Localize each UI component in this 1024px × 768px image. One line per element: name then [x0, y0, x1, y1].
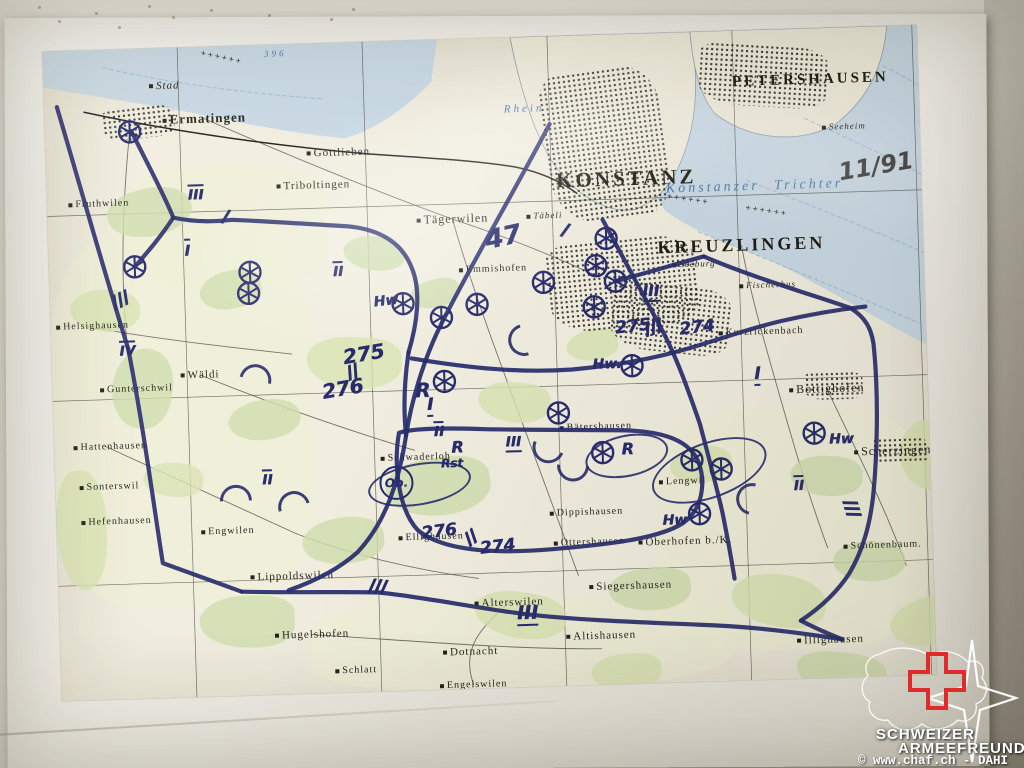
ink-boundary-line	[57, 102, 242, 597]
laminated-map-sheet: ++++++++++++++++++StadErmatingenTribolti…	[4, 14, 989, 768]
ink-overlay-layer	[42, 25, 936, 701]
handwritten-annotation: II	[332, 261, 343, 280]
unit-wheel-symbol	[121, 253, 148, 280]
handwritten-annotation: I	[754, 364, 761, 386]
handwritten-annotation: III	[642, 282, 659, 303]
tick	[652, 319, 655, 336]
unit-wheel-symbol	[545, 400, 572, 427]
tick	[658, 317, 661, 334]
topographic-map: ++++++++++++++++++StadErmatingenTribolti…	[42, 25, 936, 701]
wall-speck	[268, 14, 271, 17]
handwritten-annotation: II	[433, 421, 444, 440]
handwritten-annotation: Hw	[829, 431, 854, 448]
handwritten-annotation: IV	[119, 340, 136, 359]
tick	[842, 501, 859, 504]
handwritten-annotation: 274	[479, 535, 517, 559]
unit-wheel-symbol	[686, 500, 713, 527]
wall-speck	[352, 8, 355, 11]
handwritten-annotation: I	[184, 239, 190, 260]
unit-wheel-symbol	[428, 304, 455, 331]
wall-speck	[58, 20, 61, 23]
unit-wheel-symbol	[530, 269, 557, 296]
wall-speck	[172, 16, 175, 19]
unit-wheel-symbol	[801, 420, 828, 447]
unit-wheel-symbol	[593, 225, 620, 252]
wall-speck	[95, 12, 98, 15]
wall-right-strip	[984, 0, 1024, 768]
handwritten-annotation: Hw.	[592, 356, 622, 373]
handwritten-annotation: III	[505, 434, 521, 452]
unit-wheel-symbol	[581, 293, 608, 320]
handwritten-annotation: Hw	[373, 292, 399, 311]
boundary-tick-marks	[370, 578, 389, 595]
unit-wheel-symbol	[602, 268, 629, 295]
handwritten-annotation: I	[427, 395, 434, 417]
ink-boundary-line	[242, 573, 843, 657]
tick	[846, 513, 863, 516]
unit-wheel-symbol	[235, 280, 262, 307]
tick	[118, 292, 123, 309]
handwritten-annotation: II	[262, 469, 273, 488]
handwritten-annotation: 275	[614, 315, 652, 339]
handwritten-annotation: 276	[420, 520, 458, 544]
ink-boundary-line	[275, 124, 564, 590]
handwritten-annotation: II	[793, 475, 804, 494]
handwritten-annotation: 274	[678, 316, 716, 340]
wall-speck	[38, 6, 41, 9]
wall-speck	[330, 18, 333, 21]
photo-of-wall-map: ++++++++++++++++++StadErmatingenTribolti…	[0, 0, 1024, 768]
tick	[844, 507, 861, 510]
handwritten-annotation: III	[517, 602, 539, 627]
wall-speck	[118, 26, 121, 29]
wall-speck	[210, 9, 213, 12]
handwritten-annotation: III	[187, 184, 203, 203]
handwritten-annotation: R	[451, 437, 464, 456]
handwritten-annotation: R	[621, 439, 634, 458]
unit-wheel-symbol	[619, 352, 646, 379]
handwritten-annotation: Hw	[662, 512, 687, 529]
sheet-crease	[0, 700, 557, 736]
tick	[123, 289, 128, 306]
unit-wheel-symbol	[431, 368, 458, 395]
handwritten-annotation: Rst	[441, 456, 464, 471]
ink-boundary-line	[132, 123, 419, 360]
wall-speck	[148, 5, 151, 8]
unit-wheel-symbol	[464, 291, 491, 318]
unit-wheel-symbol	[116, 119, 143, 146]
